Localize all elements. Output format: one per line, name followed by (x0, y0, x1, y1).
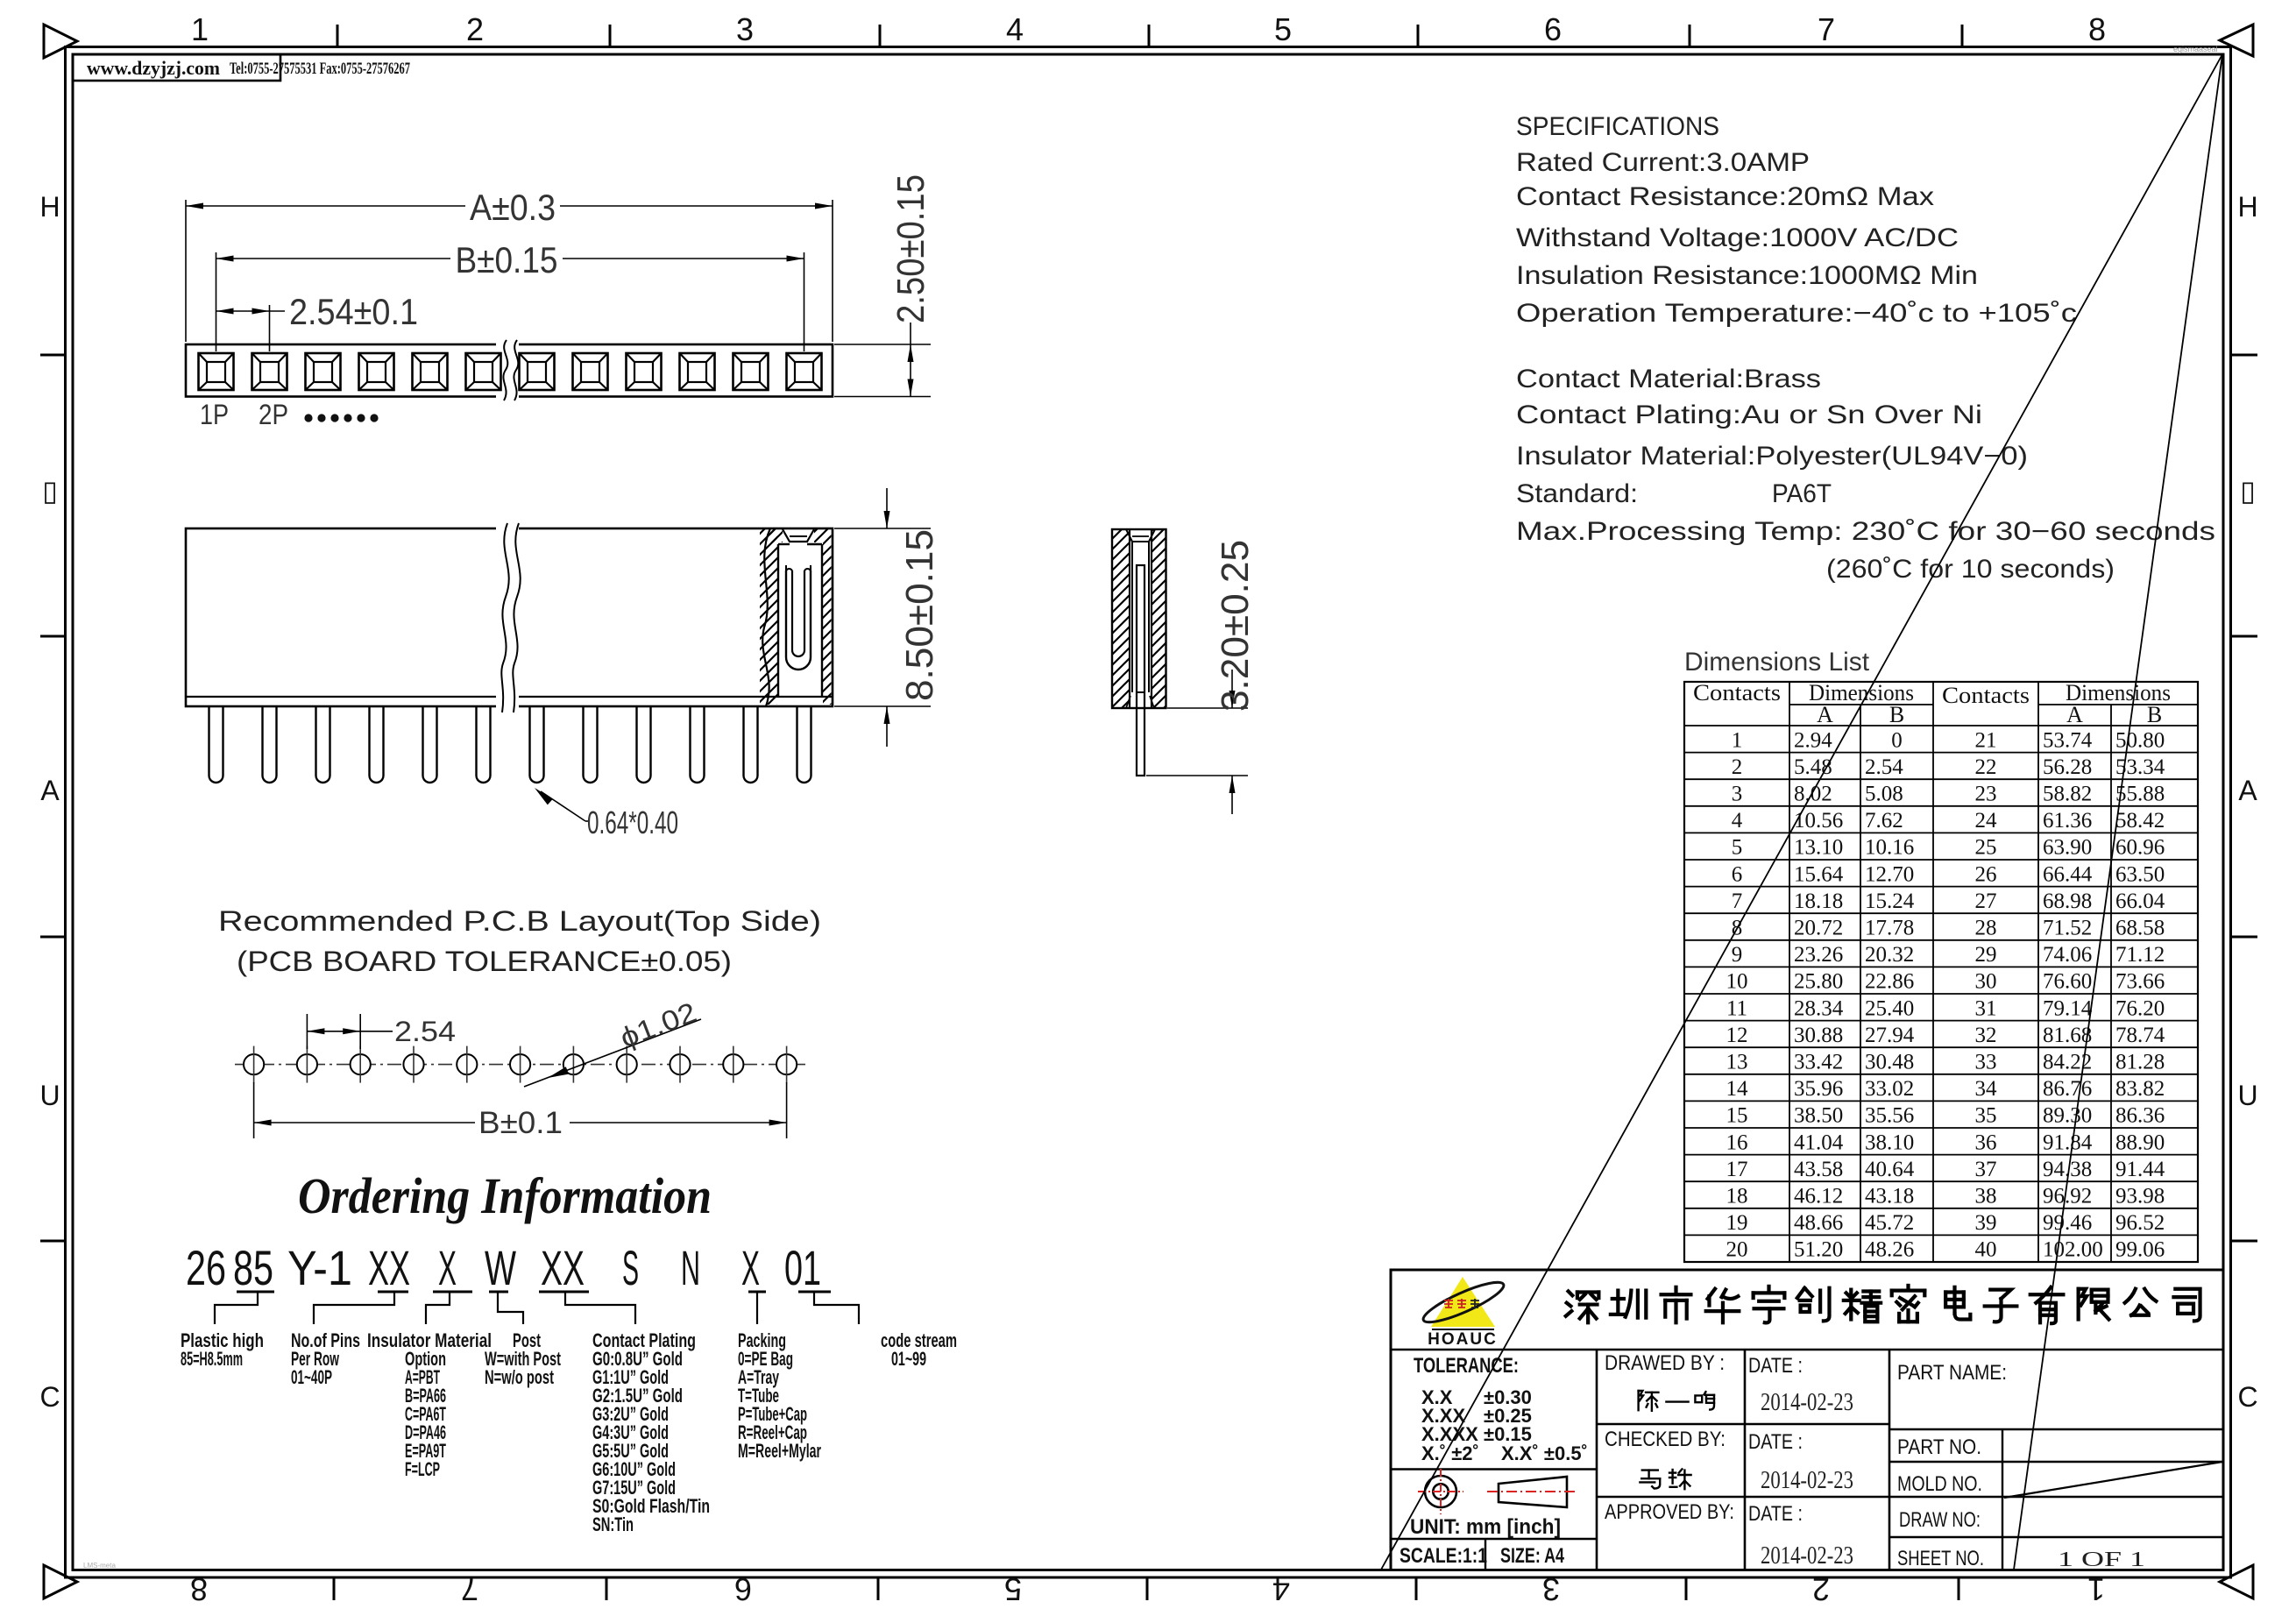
svg-text:27.94: 27.94 (1865, 1024, 1915, 1047)
svg-text:4: 4 (1006, 11, 1024, 47)
svg-text:28.34: 28.34 (1794, 996, 1844, 1020)
svg-text:2.54±0.1: 2.54±0.1 (289, 291, 418, 332)
svg-text:egismaaseal: egismaaseal (2173, 45, 2218, 53)
svg-text:76.20: 76.20 (2115, 996, 2165, 1020)
svg-text:5.08: 5.08 (1865, 783, 1903, 806)
svg-text:74.06: 74.06 (2043, 943, 2092, 967)
svg-text:8: 8 (190, 1571, 208, 1607)
svg-text:DRAW NO:: DRAW NO: (1899, 1508, 1981, 1532)
svg-text:4: 4 (1732, 809, 1743, 833)
svg-text:01~40P: 01~40P (291, 1366, 332, 1388)
svg-text:63.90: 63.90 (2043, 836, 2092, 860)
svg-text:XX: XX (541, 1240, 585, 1295)
svg-text:Recommended P.C.B Layout(Top: Recommended P.C.B Layout(Top Side) (218, 905, 821, 937)
svg-text:17: 17 (1726, 1158, 1748, 1181)
svg-text:MOLD NO.: MOLD NO. (1897, 1472, 1982, 1496)
svg-text:Max.Processing Temp: 230˚C: Max.Processing Temp: 230˚C for 30−60 sec… (1516, 517, 2215, 546)
svg-text:20: 20 (1726, 1238, 1748, 1262)
svg-text:B±0.15: B±0.15 (456, 239, 558, 280)
svg-text:38: 38 (1975, 1185, 1997, 1208)
svg-text:66.04: 66.04 (2115, 889, 2165, 913)
svg-text:SCALE:1:1: SCALE:1:1 (1400, 1544, 1487, 1568)
svg-text:1: 1 (1732, 728, 1743, 752)
svg-text:11: 11 (1726, 996, 1747, 1020)
svg-text:20.32: 20.32 (1865, 943, 1914, 967)
svg-text:81.68: 81.68 (2043, 1024, 2092, 1047)
svg-text:18: 18 (1726, 1185, 1748, 1208)
svg-text:7.62: 7.62 (1865, 809, 1903, 833)
svg-text:C: C (2237, 1381, 2257, 1413)
svg-text:(260˚C for 10 seconds): (260˚C for 10 seconds) (1826, 555, 2115, 584)
svg-text:93.98: 93.98 (2115, 1185, 2165, 1208)
svg-text:Contact Resistance:20mΩ Max: Contact Resistance:20mΩ Max (1516, 182, 1934, 211)
svg-text:A: A (40, 775, 60, 806)
svg-text:7: 7 (1732, 889, 1743, 913)
svg-text:16: 16 (1726, 1130, 1748, 1154)
svg-text:38.50: 38.50 (1794, 1104, 1843, 1128)
svg-text:15.64: 15.64 (1794, 862, 1844, 886)
svg-text:33.42: 33.42 (1794, 1051, 1843, 1074)
svg-text:2014-02-23: 2014-02-23 (1761, 1389, 1853, 1416)
svg-text:71.52: 71.52 (2043, 917, 2092, 940)
svg-text:H: H (2237, 191, 2257, 223)
svg-text:96.92: 96.92 (2043, 1185, 2092, 1208)
svg-text:A±0.3: A±0.3 (470, 187, 556, 228)
svg-text:19: 19 (1726, 1211, 1748, 1235)
svg-text:DATE :: DATE : (1748, 1502, 1803, 1526)
svg-text:X: X (741, 1240, 760, 1295)
svg-text:99.46: 99.46 (2043, 1211, 2092, 1235)
svg-text:79.14: 79.14 (2043, 996, 2093, 1020)
svg-text:XX: XX (368, 1240, 410, 1295)
svg-text:UNIT: mm [inch]: UNIT: mm [inch] (1410, 1515, 1561, 1539)
svg-text:15.24: 15.24 (1865, 889, 1915, 913)
svg-text:41.04: 41.04 (1794, 1130, 1844, 1154)
svg-text:28: 28 (1975, 917, 1997, 940)
svg-text:25: 25 (1975, 836, 1997, 860)
svg-text:0: 0 (1891, 728, 1903, 752)
svg-text:40.64: 40.64 (1865, 1158, 1915, 1181)
svg-text:60.96: 60.96 (2115, 836, 2165, 860)
svg-text:31: 31 (1975, 996, 1997, 1020)
svg-text:X.X˚ ±0.5˚: X.X˚ ±0.5˚ (1501, 1442, 1588, 1464)
svg-text:27: 27 (1975, 889, 1997, 913)
svg-text:H: H (39, 191, 60, 223)
svg-text:DATE :: DATE : (1748, 1354, 1803, 1378)
svg-text:2P: 2P (259, 399, 288, 430)
svg-text:35.56: 35.56 (1865, 1104, 1914, 1128)
svg-text:38.10: 38.10 (1865, 1130, 1914, 1154)
svg-text:DATE :: DATE : (1748, 1430, 1803, 1454)
svg-text:2.54: 2.54 (394, 1016, 456, 1047)
svg-text:30.88: 30.88 (1794, 1024, 1843, 1047)
svg-text:83.82: 83.82 (2115, 1077, 2165, 1101)
svg-text:A: A (1817, 702, 1833, 727)
svg-text:36: 36 (1975, 1130, 1997, 1154)
svg-text:12: 12 (1726, 1024, 1748, 1047)
svg-text:30: 30 (1975, 970, 1997, 994)
svg-text:86.36: 86.36 (2115, 1104, 2165, 1128)
svg-text:88.90: 88.90 (2115, 1130, 2165, 1154)
svg-text:Dimensions List: Dimensions List (1684, 648, 1870, 677)
svg-text:10.16: 10.16 (1865, 836, 1914, 860)
svg-text:102.00: 102.00 (2043, 1238, 2103, 1262)
svg-text:86.76: 86.76 (2043, 1077, 2092, 1101)
svg-text:14: 14 (1726, 1077, 1749, 1101)
svg-text:58.82: 58.82 (2043, 783, 2092, 806)
svg-text:53.74: 53.74 (2043, 728, 2093, 752)
svg-text:3: 3 (1732, 783, 1743, 806)
svg-text:91.44: 91.44 (2115, 1158, 2165, 1181)
svg-text:4: 4 (1272, 1571, 1290, 1607)
svg-text:1: 1 (191, 11, 209, 47)
svg-text:5: 5 (1732, 836, 1743, 860)
svg-text:2: 2 (1812, 1571, 1830, 1607)
svg-text:01: 01 (784, 1240, 821, 1295)
svg-text:U: U (39, 1080, 60, 1111)
svg-text:2.94: 2.94 (1794, 728, 1832, 752)
svg-text:3: 3 (1542, 1571, 1560, 1607)
svg-text:F=LCP: F=LCP (405, 1458, 440, 1480)
svg-text:Contacts: Contacts (1942, 683, 2030, 708)
svg-text:8.02: 8.02 (1794, 783, 1832, 806)
svg-text:56.28: 56.28 (2043, 755, 2092, 779)
svg-text:SIZE: A4: SIZE: A4 (1500, 1544, 1564, 1568)
svg-text:▯: ▯ (2240, 475, 2256, 507)
svg-text:1P: 1P (200, 399, 229, 430)
svg-text:DRAWED BY :: DRAWED BY : (1605, 1351, 1725, 1375)
svg-text:43.58: 43.58 (1794, 1158, 1843, 1181)
svg-text:2.50±0.15: 2.50±0.15 (889, 174, 932, 323)
svg-text:PART NAME:: PART NAME: (1897, 1361, 2007, 1385)
svg-text:48.66: 48.66 (1794, 1211, 1843, 1235)
svg-text:20.72: 20.72 (1794, 917, 1843, 940)
svg-text:SN:Tin: SN:Tin (592, 1513, 634, 1535)
svg-text:29: 29 (1975, 943, 1997, 967)
svg-text:01~99: 01~99 (891, 1348, 926, 1370)
svg-text:Contacts: Contacts (1693, 680, 1781, 705)
svg-text:S: S (622, 1240, 639, 1295)
svg-text:35: 35 (1975, 1104, 1997, 1128)
svg-text:www.dzyjzj.com: www.dzyjzj.com (87, 57, 220, 79)
svg-text:22.86: 22.86 (1865, 970, 1914, 994)
svg-text:2: 2 (1732, 755, 1743, 779)
svg-text:32: 32 (1975, 1024, 1997, 1047)
svg-text:13: 13 (1726, 1051, 1748, 1074)
svg-text:26: 26 (1975, 862, 1997, 886)
svg-text:39: 39 (1975, 1211, 1997, 1235)
svg-text:66.44: 66.44 (2043, 862, 2093, 886)
svg-text:8: 8 (2088, 11, 2106, 47)
svg-text:43.18: 43.18 (1865, 1185, 1914, 1208)
svg-text:2014-02-23: 2014-02-23 (1761, 1542, 1853, 1570)
svg-text:35.96: 35.96 (1794, 1077, 1843, 1101)
svg-text:10: 10 (1726, 970, 1748, 994)
svg-text:B±0.1: B±0.1 (478, 1106, 563, 1140)
svg-text:30.48: 30.48 (1865, 1051, 1914, 1074)
svg-text:B: B (1889, 702, 1904, 727)
svg-text:2014-02-23: 2014-02-23 (1761, 1467, 1853, 1494)
svg-text:Withstand Voltage:1000V AC/D: Withstand Voltage:1000V AC/DC (1516, 223, 1959, 252)
svg-text:6: 6 (734, 1571, 752, 1607)
svg-text:SPECIFICATIONS: SPECIFICATIONS (1516, 112, 1719, 141)
svg-text:48.26: 48.26 (1865, 1238, 1914, 1262)
svg-text:5: 5 (1004, 1571, 1022, 1607)
svg-text:2: 2 (466, 11, 484, 47)
svg-text:U: U (2237, 1080, 2257, 1111)
svg-text:Post: Post (513, 1329, 541, 1351)
svg-text:96.52: 96.52 (2115, 1211, 2165, 1235)
svg-text:7: 7 (461, 1571, 478, 1607)
svg-text:▯: ▯ (42, 475, 58, 507)
svg-text:33: 33 (1975, 1051, 1997, 1074)
svg-text:6: 6 (1732, 862, 1743, 886)
svg-text:HOAUC: HOAUC (1428, 1330, 1498, 1349)
svg-text:LMS-meta: LMS-meta (83, 1562, 116, 1570)
svg-text:Insulator Material:Polyester(: Insulator Material:Polyester(UL94V−0) (1516, 442, 2028, 471)
svg-text:PA6T: PA6T (1772, 479, 1832, 508)
svg-text:23.26: 23.26 (1794, 943, 1843, 967)
svg-text:7: 7 (1818, 11, 1835, 47)
svg-text:22: 22 (1975, 755, 1997, 779)
svg-text:1: 1 (2087, 1571, 2105, 1607)
svg-text:0.64*0.40: 0.64*0.40 (587, 804, 678, 840)
svg-text:68.98: 68.98 (2043, 889, 2092, 913)
svg-text:8.50±0.15: 8.50±0.15 (898, 529, 941, 701)
svg-text:24: 24 (1975, 809, 1998, 833)
svg-text:37: 37 (1975, 1158, 1997, 1181)
svg-text:34: 34 (1975, 1077, 1998, 1101)
svg-text:3: 3 (736, 11, 754, 47)
svg-text:A: A (2238, 775, 2257, 806)
svg-text:Contact Plating:Au or Sn O: Contact Plating:Au or Sn Over Ni (1516, 400, 1982, 429)
svg-text:68.58: 68.58 (2115, 917, 2165, 940)
svg-text:45.72: 45.72 (1865, 1211, 1914, 1235)
svg-text:25.40: 25.40 (1865, 996, 1914, 1020)
svg-text:Tel:0755-27575531 Fax:0755-27: Tel:0755-27575531 Fax:0755-27576267 (230, 60, 410, 78)
svg-text:71.12: 71.12 (2115, 943, 2165, 967)
svg-text:Y-1: Y-1 (287, 1240, 352, 1295)
svg-text:6: 6 (1544, 11, 1562, 47)
svg-text:Ordering Information: Ordering Information (298, 1167, 712, 1224)
svg-text:85: 85 (233, 1240, 273, 1295)
svg-text:TOLERANCE:: TOLERANCE: (1414, 1354, 1519, 1378)
svg-text:18.18: 18.18 (1794, 889, 1843, 913)
svg-text:Operation Temperature:−40˚c: Operation Temperature:−40˚c to +105˚c (1516, 299, 2077, 328)
svg-text:91.84: 91.84 (2043, 1130, 2093, 1154)
svg-text:N=w/o post: N=w/o post (485, 1366, 554, 1388)
svg-text:63.50: 63.50 (2115, 862, 2165, 886)
svg-text:40: 40 (1975, 1238, 1997, 1262)
svg-text:2.54: 2.54 (1865, 755, 1903, 779)
svg-text:25.80: 25.80 (1794, 970, 1843, 994)
svg-text:89.30: 89.30 (2043, 1104, 2092, 1128)
svg-text:9: 9 (1732, 943, 1743, 967)
svg-text:50.80: 50.80 (2115, 728, 2165, 752)
svg-text:B: B (2147, 702, 2162, 727)
svg-text:APPROVED BY:: APPROVED BY: (1605, 1500, 1734, 1524)
svg-text:(PCB BOARD TOLERANCE±0.05): (PCB BOARD TOLERANCE±0.05) (237, 946, 732, 977)
svg-text:46.12: 46.12 (1794, 1185, 1843, 1208)
svg-text:15: 15 (1726, 1104, 1748, 1128)
svg-text:76.60: 76.60 (2043, 970, 2092, 994)
svg-text:5: 5 (1274, 11, 1292, 47)
svg-text:N: N (681, 1240, 700, 1295)
svg-text:Rated Current:3.0AMP: Rated Current:3.0AMP (1516, 148, 1810, 177)
svg-text:78.74: 78.74 (2115, 1024, 2165, 1047)
svg-text:58.42: 58.42 (2115, 809, 2165, 833)
svg-text:17.78: 17.78 (1865, 917, 1914, 940)
svg-text:C: C (39, 1381, 60, 1413)
svg-text:51.20: 51.20 (1794, 1238, 1843, 1262)
svg-text:PART NO.: PART NO. (1897, 1435, 1981, 1459)
svg-text:81.28: 81.28 (2115, 1051, 2165, 1074)
svg-text:X: X (438, 1240, 457, 1295)
svg-text:21: 21 (1975, 728, 1997, 752)
svg-text:85=H8.5mm: 85=H8.5mm (181, 1348, 243, 1370)
svg-text:12.70: 12.70 (1865, 862, 1914, 886)
svg-text:SHEET NO.: SHEET NO. (1897, 1547, 1984, 1570)
svg-text:33.02: 33.02 (1865, 1077, 1914, 1101)
svg-text:W: W (485, 1240, 516, 1295)
svg-text:Contact Material:Brass: Contact Material:Brass (1516, 365, 1821, 393)
svg-text:M=Reel+Mylar: M=Reel+Mylar (738, 1440, 821, 1462)
svg-text:55.88: 55.88 (2115, 783, 2165, 806)
svg-text:99.06: 99.06 (2115, 1238, 2165, 1262)
svg-text:Standard:: Standard: (1516, 479, 1638, 508)
svg-text:73.66: 73.66 (2115, 970, 2165, 994)
svg-text:26: 26 (186, 1240, 226, 1295)
svg-text:CHECKED BY:: CHECKED BY: (1605, 1428, 1726, 1451)
svg-text:1 OF 1: 1 OF 1 (2058, 1549, 2145, 1571)
svg-text:A: A (2066, 702, 2083, 727)
svg-text:23: 23 (1975, 783, 1997, 806)
svg-text:Insulation Resistance:1000MΩ: Insulation Resistance:1000MΩ Min (1516, 261, 1978, 290)
svg-text:61.36: 61.36 (2043, 809, 2092, 833)
svg-text:3.20±0.25: 3.20±0.25 (1214, 540, 1257, 712)
svg-text:13.10: 13.10 (1794, 836, 1843, 860)
